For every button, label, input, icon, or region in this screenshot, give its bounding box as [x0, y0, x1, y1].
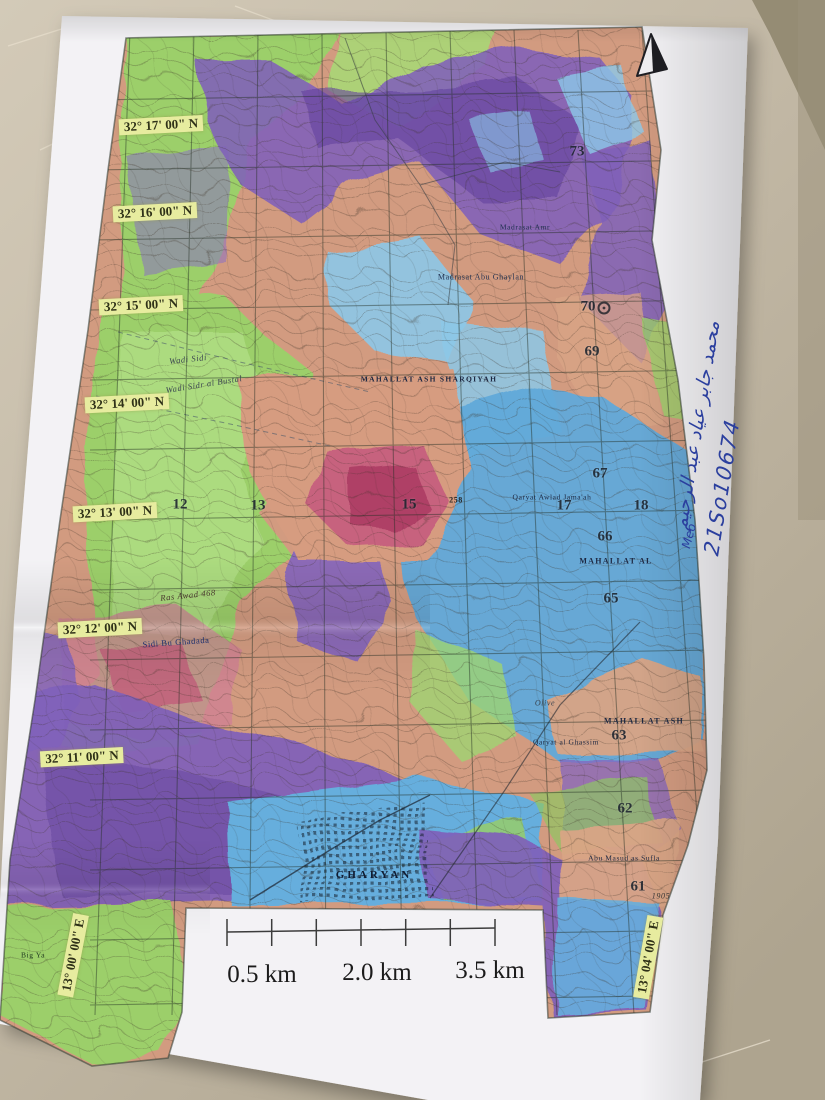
grid-number: 62 — [618, 801, 633, 818]
place-label: MAHALLAT AL — [579, 557, 652, 566]
photo-scene: 32° 17' 00" N 32° 16' 00" N 32° 15' 00" … — [0, 0, 825, 1100]
place-label: MAHALLAT ASH SHARQIYAH — [361, 375, 497, 384]
grid-number: 65 — [604, 591, 619, 608]
spot-elevation: 1905 — [652, 892, 670, 901]
place-label: Olive — [535, 699, 555, 708]
place-label-gharyan: GHARYAN — [336, 869, 412, 881]
grid-number: 15 — [402, 497, 417, 514]
scale-label: 2.0 km — [342, 959, 411, 987]
place-label: Madrasat Abu Ghaylan — [438, 273, 524, 282]
grid-number: 73 — [570, 144, 585, 161]
place-label: Abu Masud as Sufla — [588, 854, 660, 863]
grid-number: 13 — [251, 498, 266, 515]
grid-number: 12 — [173, 497, 188, 514]
spot-height-dot — [603, 307, 606, 310]
scale-label: 3.5 km — [455, 957, 524, 985]
grid-number: 69 — [585, 344, 600, 361]
place-label: Big Ya — [21, 951, 45, 960]
spot-elevation: 258 — [449, 496, 463, 505]
grid-number: 70 — [581, 299, 596, 316]
grid-number: 18 — [634, 498, 649, 515]
place-label: Qaryat al Ghassim — [533, 738, 599, 747]
place-label: Qaryat Awlad Jama'ah — [513, 493, 592, 502]
grid-number: 67 — [593, 466, 608, 483]
grid-number: 61 — [631, 879, 646, 896]
grid-number: 63 — [612, 728, 627, 745]
place-label: Madrasat Amr — [500, 223, 550, 232]
grid-number: 66 — [598, 529, 613, 546]
scale-label: 0.5 km — [227, 961, 296, 989]
place-label: MAHALLAT ASH — [604, 717, 684, 726]
